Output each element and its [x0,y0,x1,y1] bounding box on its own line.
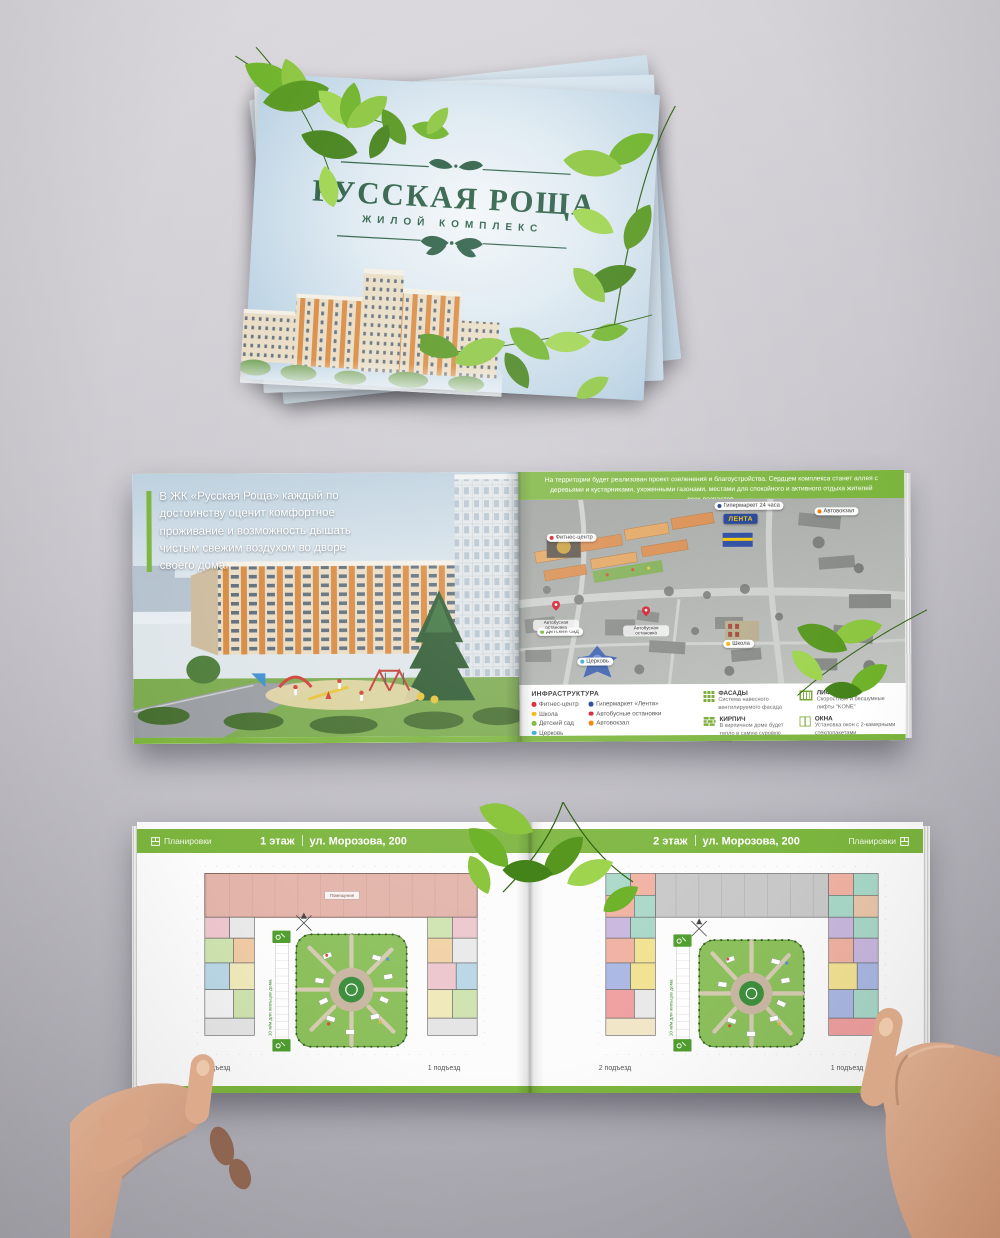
legend-infrastructure-block: ИНФРАСТРУКТУРА Фитнес-центр Школа Детски… [531,690,695,736]
legend-item: Детский сад [532,720,579,727]
legend-title: ИНФРАСТРУКТУРА [531,690,695,698]
map-label-fitness: Фитнес-центр [547,534,597,542]
map-label-bus-station: Автовокзал [814,507,858,515]
map-header-text: На территории будет реализован проект оз… [518,470,904,500]
brick-icon [703,717,715,726]
feature-brick: КИРПИЧ В кирпичном доме будет тепло в са… [703,716,792,746]
map-pin-bus-stop-1: Автобусная остановка [533,598,579,634]
school-dot-icon [726,642,730,646]
plans-icon [151,837,160,846]
plans-badge: Планировки [151,836,212,846]
left-page-footer-strip [134,736,520,744]
title-divider [302,835,303,846]
pin-icon [552,601,560,611]
entrance-label: 2 подъезд [580,1065,650,1072]
map-label-hypermarket: Гипермаркет 24 часа [714,502,783,510]
spread1-left-page: В ЖК «Русская Роща» каждый по достоинств… [132,472,519,744]
legend-item: Автовокзал [589,719,662,726]
plans-icon [900,837,909,846]
infrastructure-legend: ИНФРАСТРУКТУРА Фитнес-центр Школа Детски… [519,683,905,736]
hypermarket-dot-icon [717,504,721,508]
map-pin-bus-stop-2: Автобусная остановка [623,603,669,639]
feature-lifts: ЛИФТЫ Скоростные и бесшумные лифты "KONE… [800,689,896,712]
plans-badge: Планировки [848,836,909,846]
feature-facade: ФАСАДЫ Система навесного вентилируемого … [703,690,791,713]
spread-complex-overview: В ЖК «Русская Роща» каждый по достоинств… [132,470,905,744]
pin-icon [642,606,650,616]
legend-item: Школа [532,710,579,717]
cover-logo: РУССКАЯ РОЩА ЖИЛОЙ КОМПЛЕКС [251,145,656,270]
facade-icon [703,691,714,702]
elevator-icon [800,690,813,700]
spread1-right-page: На территории будет реализован проект оз… [518,470,905,742]
wall-background: РУССКАЯ РОЩА ЖИЛОЙ КОМПЛЕКС [0,0,1000,1238]
cover-building-render [240,251,509,397]
legend-lifts-windows-block: ЛИФТЫ Скоростные и бесшумные лифты "KONE… [800,689,896,735]
left-hand [70,1028,260,1238]
legend-item: Гипермаркет «Лента» [589,700,662,707]
aerial-map-image [518,498,905,685]
legend-item: Фитнес-центр [531,701,578,708]
brochure-cover-front: РУССКАЯ РОЩА ЖИЛОЙ КОМПЛЕКС [244,73,660,400]
title-divider [695,835,696,846]
floorplan1-header: Планировки 1 этажул. Морозова, 200 [137,829,530,853]
aerial-map: Фитнес-центр Гипермаркет 24 часа ЛЕНТА А… [518,498,905,685]
complex-caption: В ЖК «Русская Роща» каждый по достоинств… [159,488,367,575]
legend-item: Автобусные остановки [589,710,662,717]
fitness-dot-icon [550,536,554,540]
window-icon [800,717,811,727]
right-hand [848,995,1000,1238]
church-dot-icon [580,660,584,664]
top-wing-label: Помещения [330,893,355,898]
map-label-school: Школа [723,640,754,648]
entrance-label: 1 подъезд [409,1065,479,1072]
floorplan2-header: 2 этажул. Морозова, 200 Планировки [530,829,923,853]
bus-station-dot-icon [817,509,821,513]
legend-facade-brick-block: ФАСАДЫ Система навесного вентилируемого … [703,690,792,735]
parking-note: 10 м/м для жильцов дома [668,979,674,1036]
lenta-logo: ЛЕНТА [724,514,758,524]
map-label-church: Церковь [577,658,613,666]
right-page-footer-strip [520,734,906,742]
parking-note: 10 м/м для жильцов дома [267,979,273,1036]
brochure-stack: РУССКАЯ РОЩА ЖИЛОЙ КОМПЛЕКС [252,84,652,390]
